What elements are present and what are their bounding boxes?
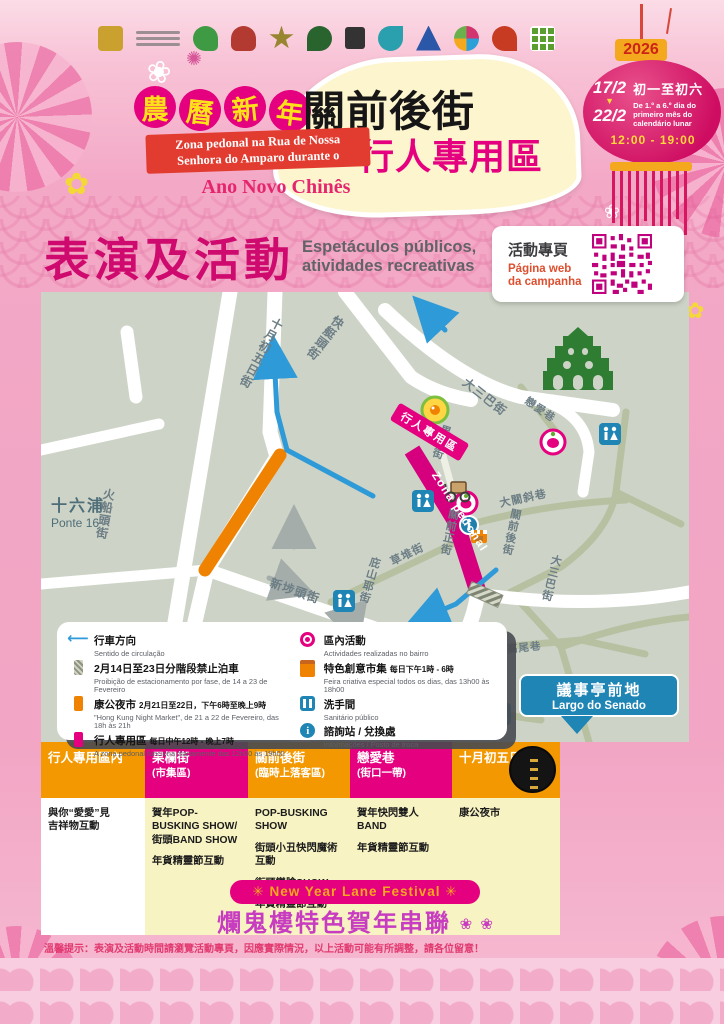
partner-logo-9-icon <box>454 26 479 51</box>
opening-hours: 12:00 - 19:00 <box>593 133 713 147</box>
senado-down-arrow-icon <box>561 716 593 734</box>
badge-char: 曆 <box>177 87 223 133</box>
date-end: 22/2 <box>593 106 626 125</box>
date-lantern: 17/2 ▼ 22/2 初一至初六 De 1.º a 6.º dia do pr… <box>583 60 721 164</box>
qr-label-zh: 活動專頁 <box>508 239 582 260</box>
ano-novo-chines: Ano Novo Chinês <box>166 176 386 199</box>
partner-logo-7-icon <box>378 26 403 51</box>
lunar-days-zh: 初一至初六 <box>633 79 713 98</box>
partner-logo-1-text <box>136 31 180 46</box>
partner-logo-10-icon <box>492 26 517 51</box>
partner-logo-4-icon <box>269 26 294 51</box>
mascot-icon <box>300 632 315 647</box>
ruins-of-st-paul-icon <box>543 327 613 390</box>
legend-item-creative-market: 特色創意市集每日下午1時 - 6時 Feira criativa especia… <box>299 659 495 695</box>
info-icon: i <box>300 723 315 738</box>
bottom-scallop-border <box>0 958 724 1024</box>
largo-do-senado-sign: 議事亭前地 Largo do Senado <box>519 674 679 717</box>
lunar-days-pt: De 1.º a 6.º dia do primeiro mês do cale… <box>633 101 713 128</box>
col-header-oct5: 十月初五日街 <box>452 742 560 798</box>
title-pedestrian-zone: 行人專用區 <box>358 128 543 180</box>
partner-logo-11-icon <box>530 26 555 51</box>
section-title-pt: Espetáculos públicos, atividades recreat… <box>302 238 476 276</box>
partner-logo-6-icon <box>345 27 365 49</box>
legend-item-pedestrian-zone: 行人專用區每日中午12時 - 晚上7時 A zona pedonal funci… <box>69 731 289 759</box>
badge-char: 新 <box>222 84 268 130</box>
legend-item-info: i 諮詢站 / 兌換處 Informações / Posto de troca <box>299 722 495 750</box>
lane-festival-banner-en: ✳ New Year Lane Festival ✳ <box>230 880 480 904</box>
partner-logos-row <box>98 18 618 58</box>
plum-blossom-icon: ✿ <box>64 170 89 200</box>
direction-arrow-icon: ⟵ <box>69 632 87 646</box>
date-range: 17/2 ▼ 22/2 <box>593 79 626 124</box>
partner-logo-3-icon <box>231 26 256 51</box>
lunar-new-year-badges: 農 曆 新 年 <box>134 86 311 128</box>
portuguese-ribbon: Zona pedonal na Rua de Nossa Senhora do … <box>145 127 370 174</box>
partner-logo-1-icon <box>98 26 123 51</box>
pedestrian-zone-swatch-icon <box>74 732 83 747</box>
section-title-zh: 表演及活動 <box>44 224 294 290</box>
legend-item-no-parking: 2月14日至23日分階段禁止泊車 Proibição de estacionam… <box>69 659 289 695</box>
qr-code <box>592 234 652 294</box>
poster: ❀ ✿ ❀ ✿ ✺ 2026 17/2 ▼ 22/2 初一至初六 De 1.º … <box>0 0 724 1024</box>
partner-logo-8-icon <box>416 26 441 51</box>
col-header-lianai: 戀愛巷(街口一帶) <box>350 742 452 798</box>
campaign-qr-box: 活動專頁 Página web da campanha <box>492 226 684 302</box>
date-start: 17/2 <box>593 78 626 97</box>
partner-logo-2-icon <box>193 26 218 51</box>
market-stall-icon <box>300 660 315 677</box>
night-market-swatch-icon <box>74 696 83 711</box>
lantern-string <box>666 8 672 34</box>
toilet-icon <box>300 696 315 711</box>
no-parking-swatch-icon <box>74 660 83 675</box>
lane-festival-banner-zh: 爛鬼樓特色賀年串聯 ❀ ❀ <box>178 903 534 938</box>
flower-deco-icon: ❀ ❀ <box>460 916 495 933</box>
night-market-street <box>205 455 280 570</box>
legend-item-toilet: 洗手間 Sanitário público <box>299 695 495 723</box>
lantern-bottom-bar <box>610 162 692 171</box>
legend-item-night-market: 康公夜市2月21日至22日，下午6時至晚上9時 "Hong Kung Night… <box>69 695 289 731</box>
lantern-string <box>640 4 643 42</box>
lane-festival-logo <box>509 746 556 793</box>
legend-item-direction: ⟵ 行車方向 Sentido de circulação <box>69 631 289 659</box>
down-chevron-icon: ▼ <box>593 97 626 106</box>
map-legend: ⟵ 行車方向 Sentido de circulação 2月14日至23日分階… <box>57 622 507 740</box>
footer-note: 溫馨提示：表演及活動時間請瀏覽活動專頁，因應實際情況，以上活動可能有所調整，請各… <box>44 940 680 955</box>
year-badge: 2026 <box>615 39 667 61</box>
qr-label-pt: Página web da campanha <box>508 263 582 289</box>
cell-pedestrian-zone: 與你“愛愛”見 吉祥物互動 <box>41 798 145 935</box>
partner-logo-5-icon <box>307 26 332 51</box>
legend-item-activities: 區內活動 Actividades realizadas no bairro <box>299 631 495 659</box>
badge-char: 農 <box>134 86 176 128</box>
